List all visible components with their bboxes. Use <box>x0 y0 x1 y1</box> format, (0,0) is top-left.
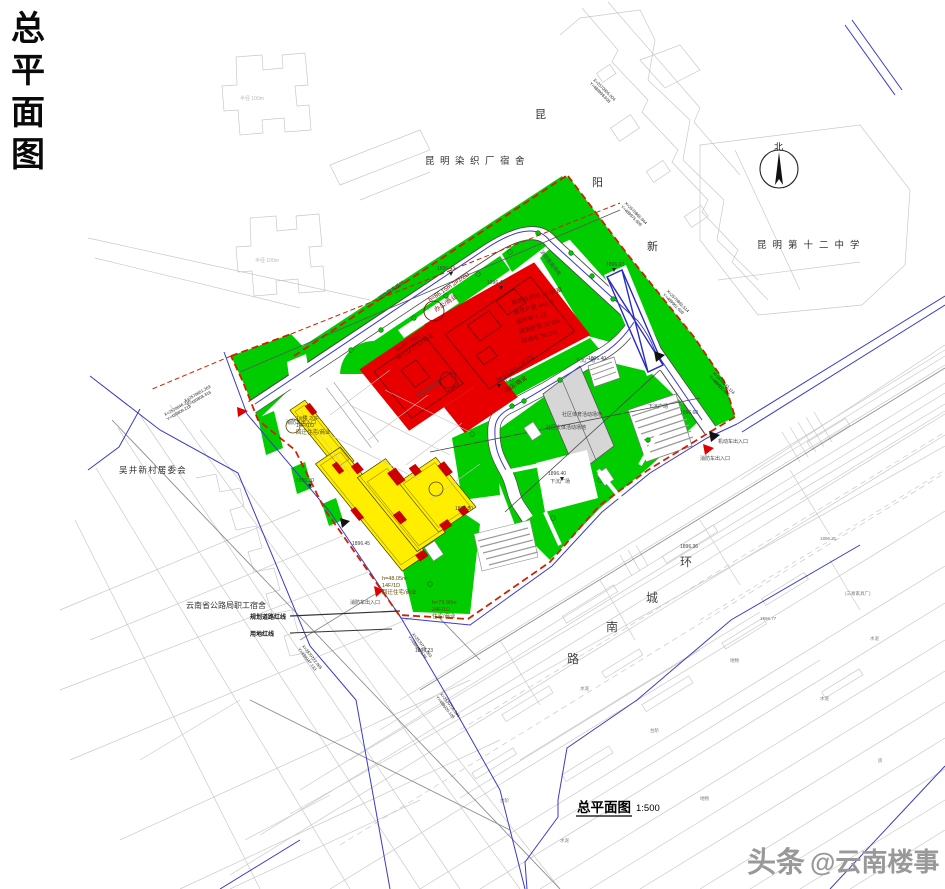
svg-text:14F/1D: 14F/1D <box>296 423 314 429</box>
svg-text:h=79.90m: h=79.90m <box>432 600 457 606</box>
svg-text:1896.40: 1896.40 <box>548 471 566 477</box>
svg-text:面: 面 <box>11 94 45 132</box>
svg-text:h=48.05m: h=48.05m <box>382 576 407 582</box>
svg-text:1896.45: 1896.45 <box>352 541 370 547</box>
svg-text:路: 路 <box>567 651 579 666</box>
svg-text:14F/1D: 14F/1D <box>382 583 400 589</box>
svg-text:下沉广场: 下沉广场 <box>648 403 668 410</box>
svg-text:社区文体活动场地: 社区文体活动场地 <box>546 424 586 431</box>
svg-text:水泥: 水泥 <box>580 685 589 692</box>
svg-text:消防车出入口: 消防车出入口 <box>350 599 380 606</box>
svg-text:昆明第十二中学: 昆明第十二中学 <box>757 239 866 251</box>
svg-text:规划道路红线: 规划道路红线 <box>250 613 286 621</box>
svg-text:房: 房 <box>878 757 883 764</box>
svg-text:半径 100m: 半径 100m <box>255 257 279 264</box>
svg-text:下沉广场: 下沉广场 <box>550 478 570 485</box>
svg-text:1896.30: 1896.30 <box>455 506 473 512</box>
svg-text:24F/1D: 24F/1D <box>432 607 450 613</box>
svg-text:头条: 头条 <box>747 846 805 879</box>
svg-text:地物: 地物 <box>730 657 739 664</box>
svg-text:1896.43: 1896.43 <box>487 280 505 286</box>
svg-text:南: 南 <box>606 619 618 634</box>
svg-text:城: 城 <box>646 591 658 605</box>
svg-text:1896.63: 1896.63 <box>606 262 624 268</box>
svg-text:总: 总 <box>11 10 45 48</box>
svg-text:下沉广场: 下沉广场 <box>575 357 595 364</box>
svg-text:地物: 地物 <box>700 795 709 802</box>
svg-text:阳: 阳 <box>592 176 603 189</box>
svg-text:环: 环 <box>680 555 692 569</box>
svg-text:吴井新村居委会: 吴井新村居委会 <box>119 465 187 475</box>
svg-text:1896.36: 1896.36 <box>680 544 698 550</box>
svg-text:1896.77: 1896.77 <box>760 616 777 621</box>
svg-text:回迁住宅/商业: 回迁住宅/商业 <box>296 428 331 436</box>
svg-text:水泥: 水泥 <box>560 837 569 844</box>
svg-text:新: 新 <box>647 239 658 253</box>
svg-text:1896.43: 1896.43 <box>437 266 455 272</box>
svg-text:1:500: 1:500 <box>636 803 660 814</box>
svg-text:@云南楼事: @云南楼事 <box>810 847 939 877</box>
svg-text:社区体育活动场地: 社区体育活动场地 <box>562 411 602 418</box>
svg-text:用地红线: 用地红线 <box>249 630 274 638</box>
svg-text:住宅/商业: 住宅/商业 <box>432 612 456 620</box>
svg-text:水泥: 水泥 <box>870 635 879 642</box>
svg-text:台阶: 台阶 <box>500 797 509 804</box>
svg-text:图: 图 <box>11 136 45 174</box>
svg-text:北: 北 <box>774 142 783 152</box>
svg-text:台阶: 台阶 <box>650 727 659 734</box>
svg-text:消防车出入口: 消防车出入口 <box>700 455 730 462</box>
svg-text:机动车出入口: 机动车出入口 <box>718 438 748 445</box>
svg-text:云南省公路局职工宿舍: 云南省公路局职工宿舍 <box>186 600 266 610</box>
svg-text:回迁住宅/商业: 回迁住宅/商业 <box>382 588 417 596</box>
svg-text:1896.60: 1896.60 <box>680 410 698 416</box>
svg-text:半径 100m: 半径 100m <box>240 95 264 102</box>
svg-text:平: 平 <box>11 52 45 90</box>
svg-text:(三易家具厂): (三易家具厂) <box>845 590 871 597</box>
svg-text:1#楼 20F: 1#楼 20F <box>296 414 319 422</box>
svg-text:水泥: 水泥 <box>820 695 829 702</box>
svg-text:总平面图: 总平面图 <box>577 799 631 815</box>
svg-text:1896.30: 1896.30 <box>296 478 314 484</box>
svg-text:昆: 昆 <box>535 108 546 121</box>
svg-text:昆明染织厂宿舍: 昆明染织厂宿舍 <box>425 155 530 167</box>
svg-text:1896.31: 1896.31 <box>820 536 837 541</box>
